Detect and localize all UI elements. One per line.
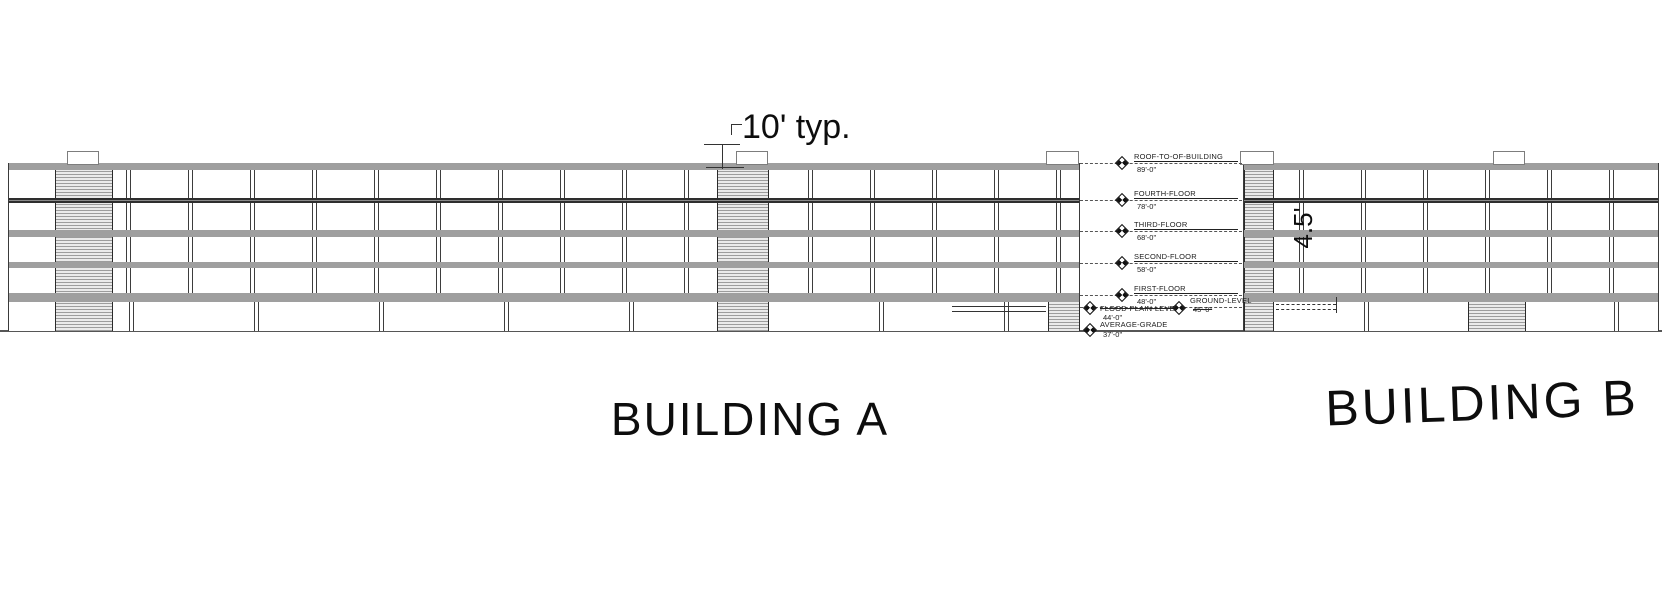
level-label: ROOF-TO-OF-BUILDING xyxy=(1134,152,1238,162)
level-label: GROUND-LEVEL xyxy=(1190,296,1252,305)
roof-penthouse-box xyxy=(736,151,768,165)
typ-dimension-note: 10' typ. xyxy=(742,108,851,147)
level-elevation: 45'-0" xyxy=(1193,305,1212,314)
building-a-facade xyxy=(8,163,1080,331)
roof-band xyxy=(9,163,1079,170)
stair-tower-hatch xyxy=(717,163,769,331)
building-b-label: BUILDING B xyxy=(1296,368,1668,439)
level-line-second xyxy=(1080,263,1242,264)
level-elevation: 68'-0" xyxy=(1137,233,1156,242)
building-a-label: BUILDING A xyxy=(558,392,942,446)
ground-hatch-block xyxy=(1048,302,1080,331)
vertical-dimension-note: 4.5' xyxy=(1289,193,1317,263)
level-line-roof xyxy=(1080,163,1242,164)
second-floor-band xyxy=(9,262,1079,268)
roof-penthouse-box xyxy=(67,151,99,165)
ground-story xyxy=(9,302,1079,331)
level-marker-icon xyxy=(1115,224,1129,238)
fourth-floor-line xyxy=(9,198,1079,203)
level-marker-icon xyxy=(1083,301,1097,315)
first-floor-band xyxy=(1244,293,1658,302)
flood-line-segment xyxy=(1276,304,1336,310)
elevation-drawing: 10' typ. 4.5' ROOF-TO-OF-BUILDING 89'-0"… xyxy=(0,0,1670,600)
level-elevation: 89'-0" xyxy=(1137,165,1156,174)
level-line-third xyxy=(1080,231,1242,232)
level-marker-icon xyxy=(1083,323,1097,337)
level-label: FLOOD-PLAIN-LEVEL xyxy=(1100,304,1179,313)
stair-tower-hatch xyxy=(1244,163,1274,331)
level-marker-icon xyxy=(1115,288,1129,302)
dimension-tick xyxy=(706,167,744,168)
roof-band xyxy=(1244,163,1658,170)
level-elevation: 78'-0" xyxy=(1137,202,1156,211)
first-floor-band xyxy=(9,293,1079,302)
level-marker-icon xyxy=(1115,256,1129,270)
level-label: FOURTH-FLOOR xyxy=(1134,189,1238,199)
level-marker-icon xyxy=(1115,193,1129,207)
level-line-fourth xyxy=(1080,200,1242,201)
flood-line-end-tick xyxy=(1336,297,1337,313)
third-floor-band xyxy=(9,230,1079,237)
dimension-bracket xyxy=(731,124,732,135)
level-elevation: 58'-0" xyxy=(1137,265,1156,274)
level-elevation: 37'-0" xyxy=(1103,330,1122,339)
flood-line-segment xyxy=(952,306,1046,312)
roof-penthouse-box xyxy=(1493,151,1525,165)
level-label: FIRST-FLOOR xyxy=(1134,284,1238,294)
stair-tower-hatch xyxy=(55,163,113,331)
level-label: THIRD-FLOOR xyxy=(1134,220,1238,230)
ground-hatch-block xyxy=(1468,302,1526,331)
roof-penthouse-box xyxy=(1046,151,1079,165)
level-label: SECOND-FLOOR xyxy=(1134,252,1238,262)
level-marker-icon xyxy=(1115,156,1129,170)
dimension-bracket xyxy=(731,124,742,125)
level-label: AVERAGE-GRADE xyxy=(1100,320,1167,329)
roof-penthouse-box xyxy=(1240,151,1274,165)
dimension-tick xyxy=(722,145,723,169)
